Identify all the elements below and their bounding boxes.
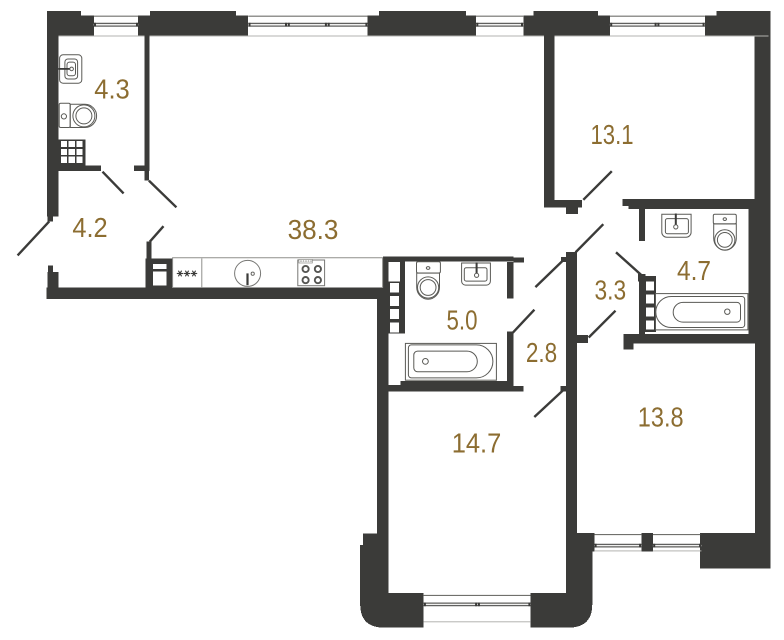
svg-text:5.0: 5.0 (447, 304, 478, 335)
svg-text:14.7: 14.7 (452, 428, 502, 459)
svg-text:2.8: 2.8 (526, 337, 557, 368)
svg-text:13.8: 13.8 (638, 401, 684, 432)
svg-text:4.7: 4.7 (677, 255, 711, 286)
svg-text:13.1: 13.1 (591, 119, 634, 150)
svg-text:4.2: 4.2 (72, 212, 107, 243)
svg-text:3.3: 3.3 (595, 274, 627, 305)
svg-text:38.3: 38.3 (288, 214, 339, 245)
svg-text:4.3: 4.3 (94, 74, 130, 105)
